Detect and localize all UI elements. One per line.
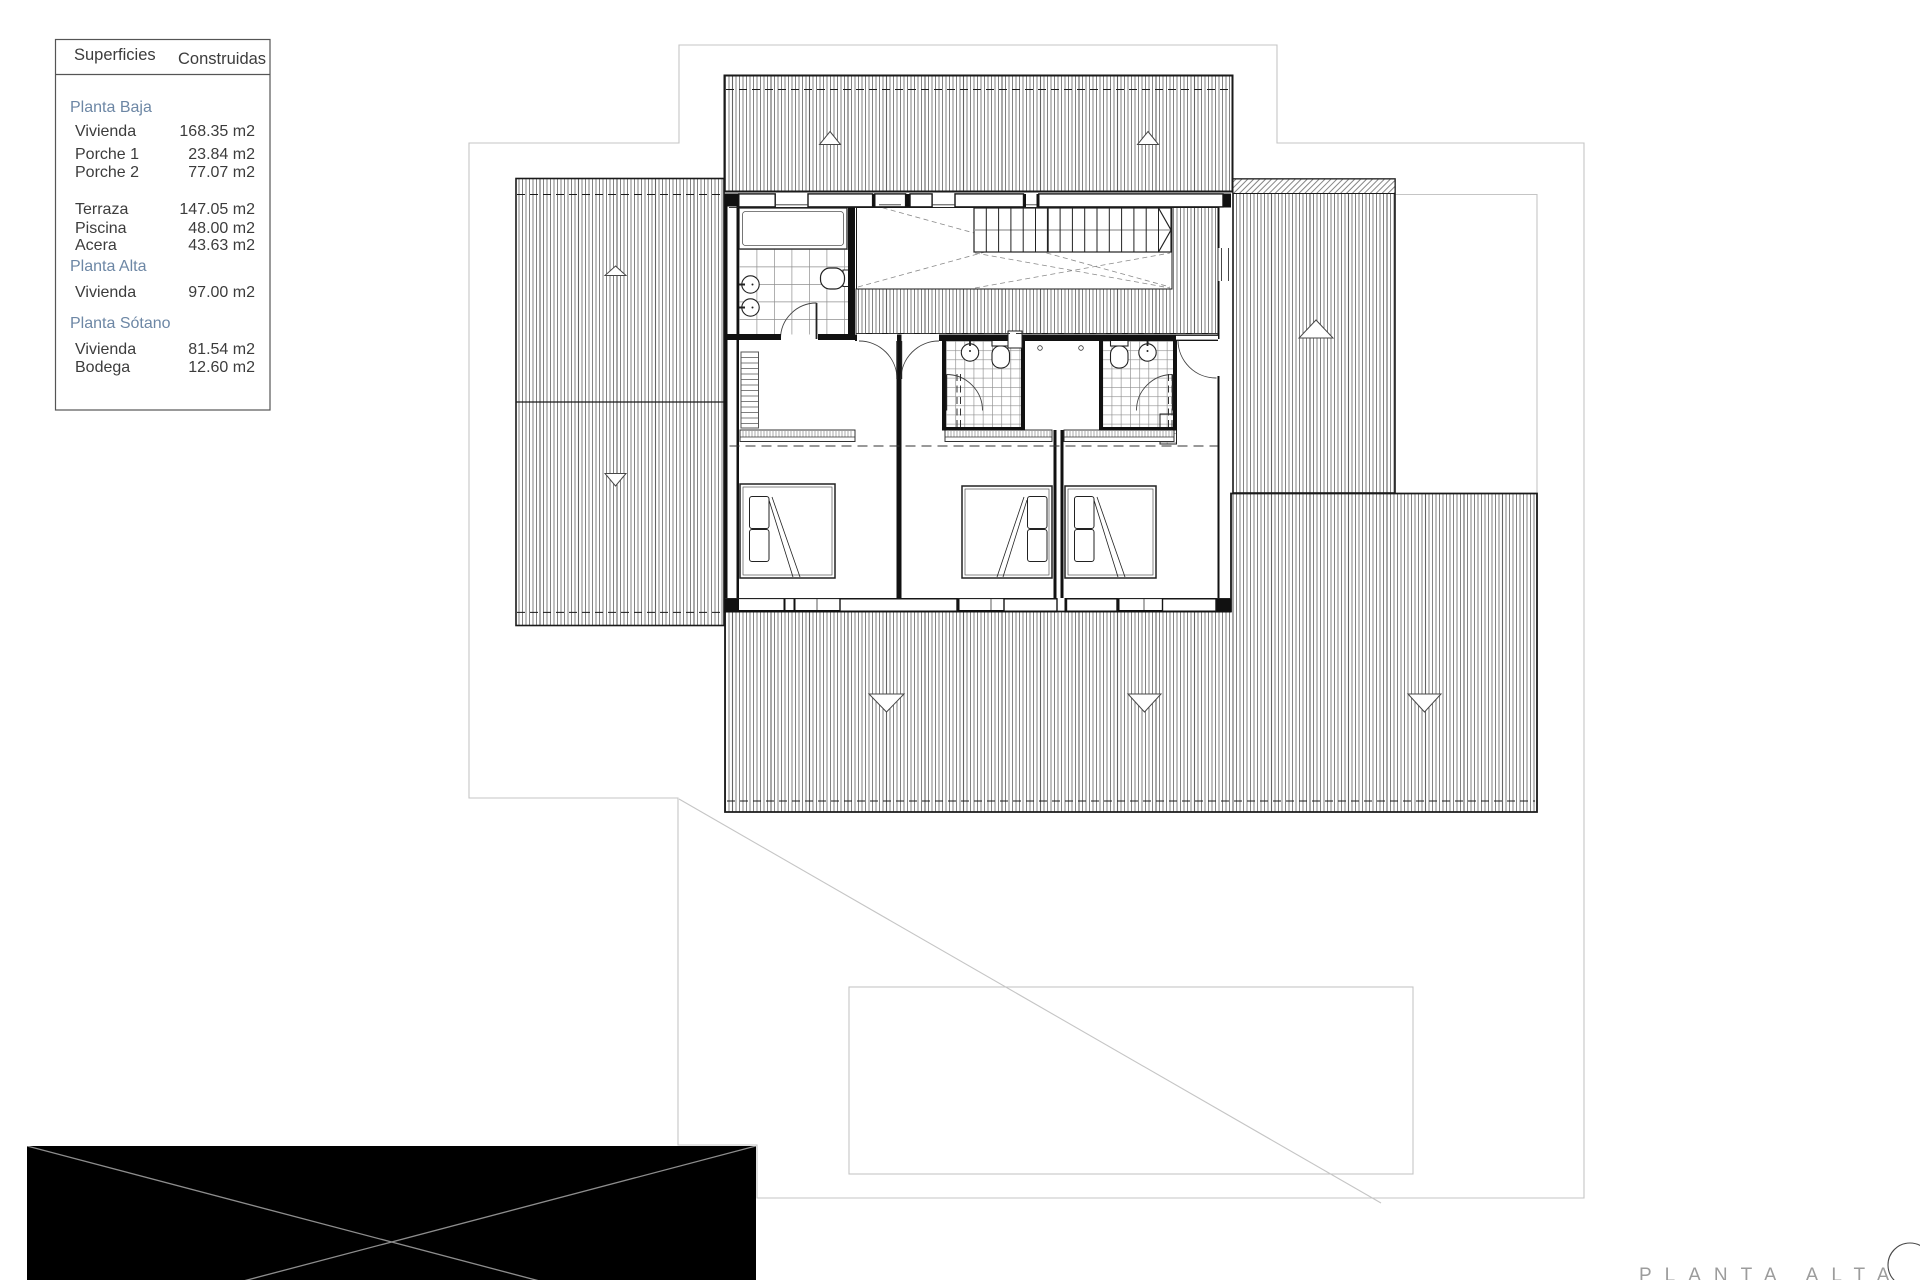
svg-text:Terraza: Terraza xyxy=(75,201,128,218)
svg-text:97.00 m2: 97.00 m2 xyxy=(188,284,255,301)
svg-text:Planta Baja: Planta Baja xyxy=(70,99,152,116)
svg-text:Porche 1: Porche 1 xyxy=(75,146,139,163)
svg-text:23.84 m2: 23.84 m2 xyxy=(188,146,255,163)
svg-text:147.05 m2: 147.05 m2 xyxy=(179,201,255,218)
svg-text:81.54 m2: 81.54 m2 xyxy=(188,341,255,358)
svg-text:Construidas: Construidas xyxy=(178,50,266,68)
svg-text:12.60 m2: 12.60 m2 xyxy=(188,359,255,376)
svg-text:Planta Sótano: Planta Sótano xyxy=(70,315,171,332)
svg-text:Planta Alta: Planta Alta xyxy=(70,258,147,275)
svg-text:168.35 m2: 168.35 m2 xyxy=(179,123,255,140)
svg-text:Superficies: Superficies xyxy=(74,46,156,64)
svg-text:Vivienda: Vivienda xyxy=(75,284,136,301)
svg-text:Porche 2: Porche 2 xyxy=(75,164,139,181)
svg-text:77.07 m2: 77.07 m2 xyxy=(188,164,255,181)
svg-text:Vivienda: Vivienda xyxy=(75,341,136,358)
svg-text:48.00 m2: 48.00 m2 xyxy=(188,220,255,237)
svg-text:PLANTA ALTA: PLANTA ALTA xyxy=(1639,1265,1902,1280)
svg-text:Bodega: Bodega xyxy=(75,359,130,376)
svg-text:43.63 m2: 43.63 m2 xyxy=(188,237,255,254)
svg-text:Vivienda: Vivienda xyxy=(75,123,136,140)
svg-text:Piscina: Piscina xyxy=(75,220,127,237)
svg-text:Acera: Acera xyxy=(75,237,117,254)
